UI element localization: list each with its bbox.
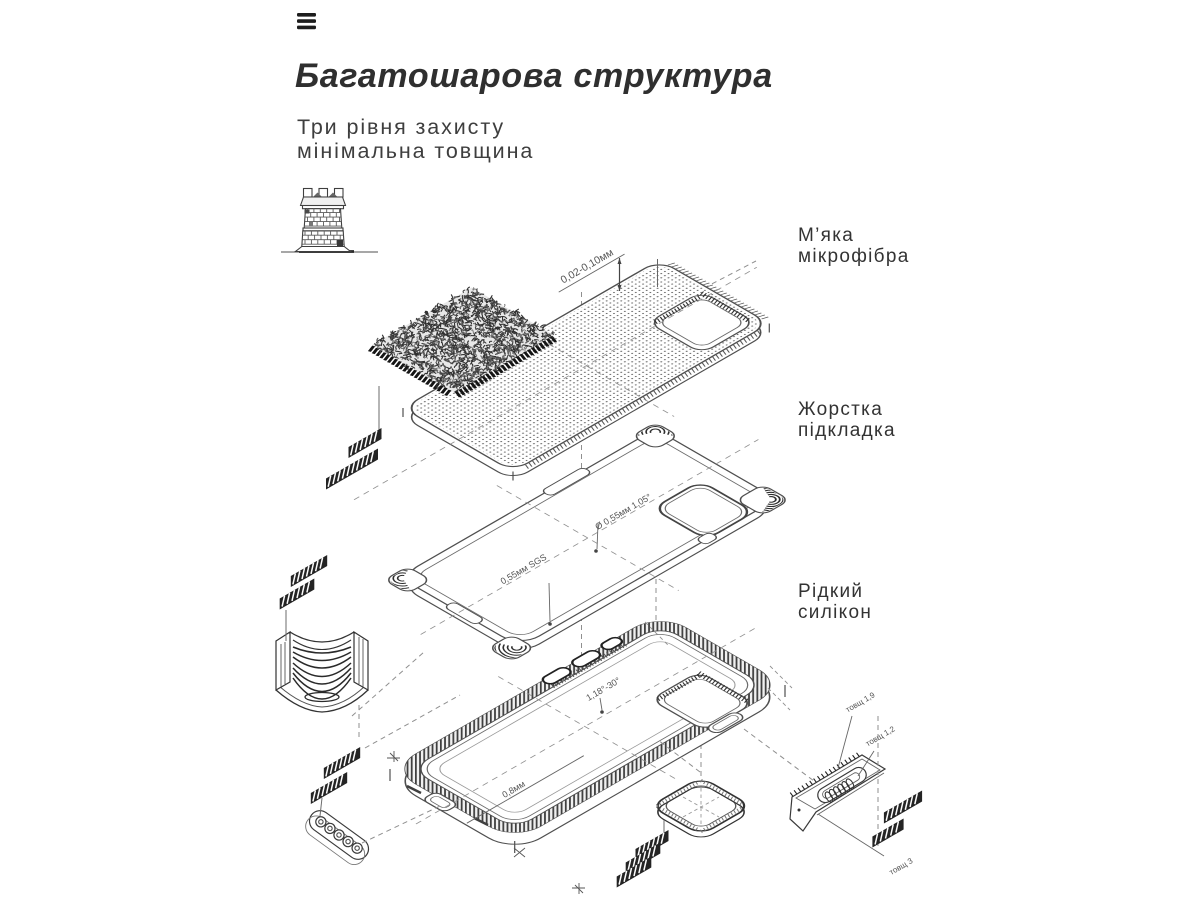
svg-text:товщ 3: товщ 3 — [888, 856, 915, 877]
svg-text:М’якамікрофібра: М’якамікрофібра — [798, 225, 910, 267]
svg-text:Три рівня захисту: Три рівня захисту — [297, 115, 505, 139]
svg-text:товщ 1,9: товщ 1,9 — [844, 690, 877, 714]
svg-text:0,02-0,10мм: 0,02-0,10мм — [559, 247, 616, 287]
svg-text:товщ 1,2: товщ 1,2 — [864, 724, 897, 748]
svg-text:Жорсткапідкладка: Жорсткапідкладка — [798, 399, 896, 441]
svg-text:Рідкийсилікон: Рідкийсилікон — [798, 581, 872, 623]
svg-text:Багатошарова структура: Багатошарова структура — [295, 57, 773, 95]
svg-text:мінімальна товщина: мінімальна товщина — [297, 139, 534, 163]
